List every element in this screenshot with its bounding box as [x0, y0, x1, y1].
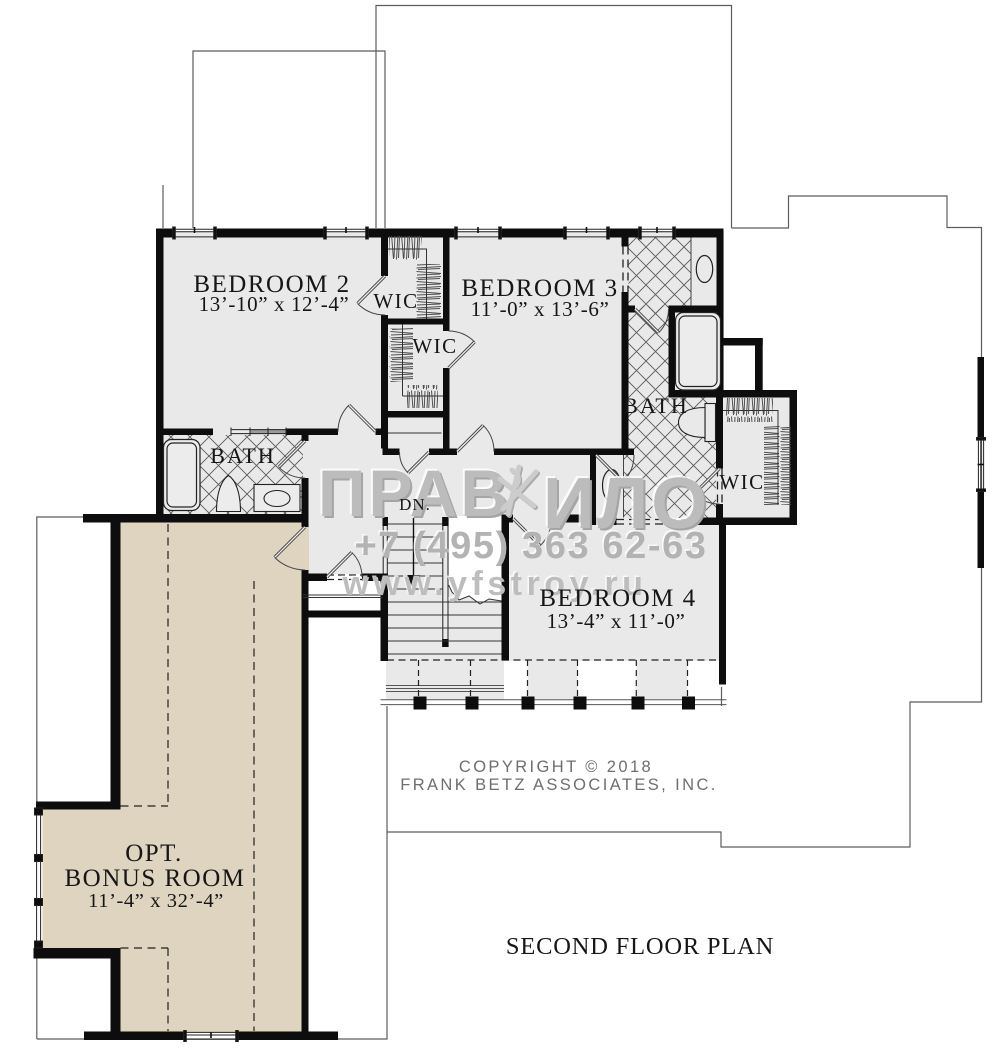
svg-text:OPT.: OPT.	[125, 840, 183, 867]
svg-text:COPYRIGHT © 2018: COPYRIGHT © 2018	[459, 758, 653, 776]
svg-text:BATH: BATH	[210, 443, 275, 468]
svg-text:13’-4” x 11’-0”: 13’-4” x 11’-0”	[547, 609, 686, 633]
svg-text:DN.: DN.	[399, 495, 431, 514]
svg-text:WIC: WIC	[412, 334, 457, 358]
svg-text:BONUS ROOM: BONUS ROOM	[64, 865, 245, 892]
svg-text:11’-4” x 32’-4”: 11’-4” x 32’-4”	[88, 890, 224, 912]
svg-text:WIC: WIC	[719, 470, 764, 494]
svg-text:13’-10” x 12’-4”: 13’-10” x 12’-4”	[199, 292, 350, 316]
svg-text:+7 (495) 363 62-63: +7 (495) 363 62-63	[354, 525, 707, 567]
svg-text:BEDROOM 4: BEDROOM 4	[539, 585, 696, 612]
svg-text:BATH: BATH	[623, 393, 688, 418]
svg-text:11’-0” x 13’-6”: 11’-0” x 13’-6”	[471, 297, 610, 321]
svg-text:SECOND FLOOR PLAN: SECOND FLOOR PLAN	[506, 933, 774, 960]
svg-text:FRANK BETZ ASSOCIATES, INC.: FRANK BETZ ASSOCIATES, INC.	[400, 776, 718, 794]
svg-text:WIC: WIC	[373, 289, 418, 313]
svg-text:ПРАВ: ПРАВ	[318, 456, 511, 530]
